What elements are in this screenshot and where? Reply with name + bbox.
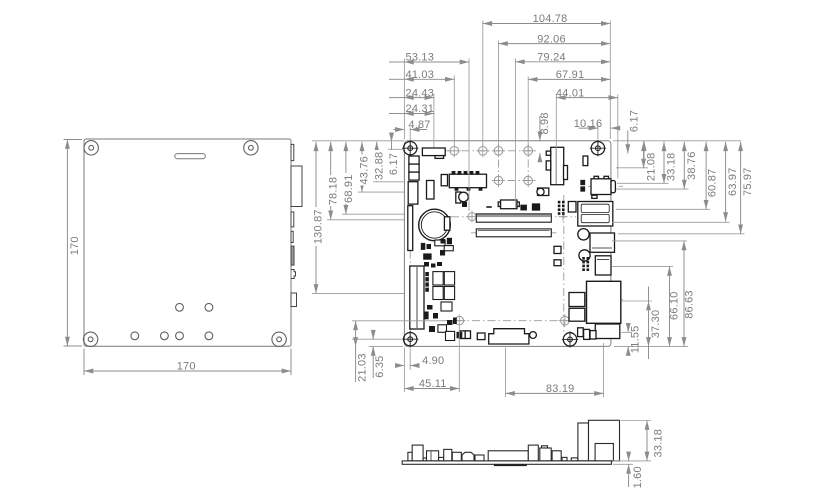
svg-text:4.90: 4.90 xyxy=(422,355,444,367)
svg-text:104.78: 104.78 xyxy=(533,13,568,25)
svg-text:21.08: 21.08 xyxy=(646,153,658,182)
svg-text:43.76: 43.76 xyxy=(358,156,370,185)
svg-text:41.03: 41.03 xyxy=(406,69,435,81)
svg-text:63.97: 63.97 xyxy=(727,167,739,196)
svg-text:38.76: 38.76 xyxy=(686,151,698,180)
svg-text:45.11: 45.11 xyxy=(419,378,447,390)
svg-text:68.91: 68.91 xyxy=(343,174,355,203)
svg-text:75.97: 75.97 xyxy=(742,167,754,196)
svg-text:78.18: 78.18 xyxy=(327,177,339,206)
svg-text:1.60: 1.60 xyxy=(632,466,644,488)
svg-text:86.63: 86.63 xyxy=(683,290,695,319)
svg-text:6.17: 6.17 xyxy=(388,153,400,175)
svg-text:170: 170 xyxy=(69,236,81,255)
svg-text:6.17: 6.17 xyxy=(629,110,641,132)
svg-text:67.91: 67.91 xyxy=(556,69,585,81)
svg-text:44.01: 44.01 xyxy=(556,87,585,99)
svg-text:21.03: 21.03 xyxy=(356,353,368,382)
svg-text:130.87: 130.87 xyxy=(312,209,324,244)
svg-text:79.24: 79.24 xyxy=(537,52,566,64)
svg-text:24.43: 24.43 xyxy=(406,87,435,99)
svg-text:6.35: 6.35 xyxy=(374,355,386,377)
svg-text:170: 170 xyxy=(177,361,196,373)
svg-text:83.19: 83.19 xyxy=(546,383,575,395)
svg-text:33.18: 33.18 xyxy=(653,429,665,458)
svg-text:4.87: 4.87 xyxy=(408,119,430,131)
svg-text:8.98: 8.98 xyxy=(539,112,551,134)
svg-text:92.06: 92.06 xyxy=(537,33,566,45)
svg-text:11.55: 11.55 xyxy=(630,326,642,354)
svg-text:66.10: 66.10 xyxy=(669,291,681,320)
svg-text:10.16: 10.16 xyxy=(574,118,603,130)
svg-text:33.18: 33.18 xyxy=(666,153,678,182)
svg-text:37.30: 37.30 xyxy=(650,310,662,339)
svg-text:24.31: 24.31 xyxy=(406,103,435,115)
svg-text:32.88: 32.88 xyxy=(373,152,385,181)
svg-text:60.87: 60.87 xyxy=(707,169,719,198)
svg-text:53.13: 53.13 xyxy=(406,52,435,64)
